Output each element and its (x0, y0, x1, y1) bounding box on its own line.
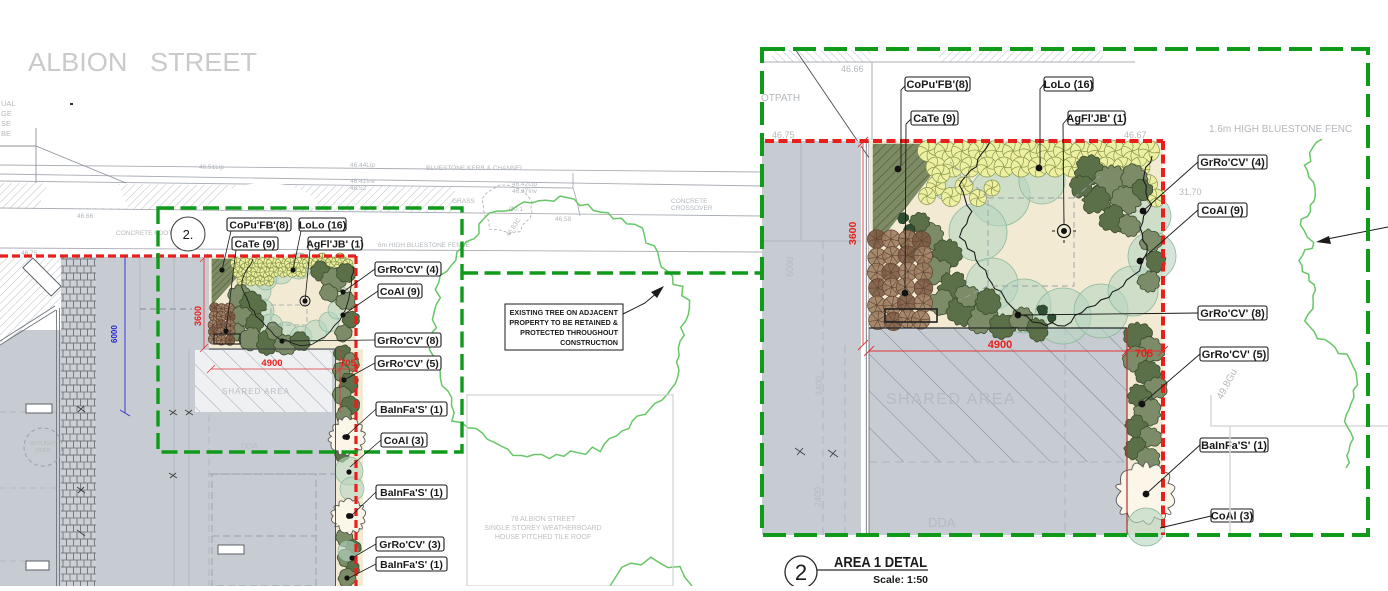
svg-text:OVER: OVER (35, 448, 51, 454)
svg-text:CROSSOVER: CROSSOVER (671, 205, 713, 212)
svg-text:CoAl (3): CoAl (3) (1211, 510, 1254, 522)
svg-text:46.44Lip: 46.44Lip (350, 162, 375, 169)
svg-text:LoLo (16): LoLo (16) (299, 219, 346, 231)
svg-text:CaTe (9): CaTe (9) (235, 238, 276, 250)
svg-text:PROPERTY TO BE RETAINED &: PROPERTY TO BE RETAINED & (509, 318, 618, 327)
svg-text:ALBION STREET: ALBION STREET (28, 47, 257, 77)
svg-text:Scale: 1:50: Scale: 1:50 (873, 574, 928, 586)
svg-text:CaTe (9): CaTe (9) (913, 113, 956, 125)
svg-text:BaInFa'S' (1): BaInFa'S' (1) (380, 404, 443, 416)
svg-text:UAL: UAL (1, 99, 16, 108)
svg-text:DDA: DDA (928, 515, 956, 530)
svg-text:2.: 2. (183, 227, 194, 242)
svg-text:AgFl'JB' (1): AgFl'JB' (1) (306, 238, 364, 250)
svg-text:GrRo'CV' (4): GrRo'CV' (4) (1200, 157, 1265, 169)
svg-text:4900: 4900 (261, 358, 282, 369)
svg-text:4900: 4900 (988, 339, 1012, 351)
svg-text:46.58: 46.58 (555, 216, 572, 223)
svg-text:6000: 6000 (110, 325, 119, 343)
svg-text:GrRo'CV' (3): GrRo'CV' (3) (379, 539, 441, 551)
svg-text:CoAl (9): CoAl (9) (380, 286, 420, 298)
svg-text:OTPATH: OTPATH (761, 93, 800, 104)
svg-text:LoLo (16): LoLo (16) (1044, 79, 1094, 91)
svg-text:6000: 6000 (785, 257, 795, 277)
svg-text:BaInFa'S' (1): BaInFa'S' (1) (1201, 440, 1267, 452)
svg-text:SHARED AREA: SHARED AREA (222, 387, 290, 396)
svg-text:46.66: 46.66 (841, 64, 864, 74)
svg-text:HOUSE PITCHED TILE ROOF: HOUSE PITCHED TILE ROOF (495, 534, 591, 541)
svg-text:GrRo'CV' (8): GrRo'CV' (8) (1200, 308, 1265, 320)
svg-text:GrRo'CV' (4): GrRo'CV' (4) (377, 264, 439, 276)
svg-text:GrRo'CV' (5): GrRo'CV' (5) (1202, 349, 1267, 361)
svg-text:EXISTING TREE ON ADJACENT: EXISTING TREE ON ADJACENT (510, 308, 619, 317)
svg-text:CoAl (3): CoAl (3) (384, 435, 424, 447)
svg-text:46.66: 46.66 (77, 213, 94, 220)
svg-text:CoAl (9): CoAl (9) (1201, 205, 1244, 217)
svg-text:SHARED AREA: SHARED AREA (886, 391, 1016, 408)
svg-text:GrRo'CV' (5): GrRo'CV' (5) (377, 358, 439, 370)
svg-text:BaInFa'S' (1): BaInFa'S' (1) (380, 559, 443, 571)
svg-text:SINGLE STOREY WEATHERBOARD: SINGLE STOREY WEATHERBOARD (484, 525, 601, 532)
svg-text:GrRo'CV' (8): GrRo'CV' (8) (377, 335, 439, 347)
svg-text:CoPu'FB'(8): CoPu'FB'(8) (229, 219, 288, 231)
svg-text:GRASS: GRASS (452, 198, 475, 205)
svg-text:BLUESTONE KERB & CHANNEL: BLUESTONE KERB & CHANNEL (426, 165, 524, 172)
svg-text:6m HIGH BLUESTONE FENCE: 6m HIGH BLUESTONE FENCE (378, 242, 471, 249)
svg-text:3600: 3600 (193, 306, 203, 326)
svg-text:46.67: 46.67 (1124, 130, 1147, 140)
svg-text:46.42Lip: 46.42Lip (512, 181, 537, 188)
svg-text:AREA 1 DETAL: AREA 1 DETAL (834, 555, 927, 571)
svg-text:46.75: 46.75 (772, 130, 795, 140)
svg-text:2400: 2400 (813, 487, 823, 507)
svg-text:DDA: DDA (241, 442, 259, 451)
svg-text:46.51Lip: 46.51Lip (199, 164, 224, 171)
svg-text:3600: 3600 (847, 221, 859, 245)
svg-text:46.37Inv: 46.37Inv (512, 188, 538, 195)
svg-text:705: 705 (340, 358, 357, 369)
svg-text:46.41Inv: 46.41Inv (350, 178, 376, 185)
svg-text:CONSTRUCTION: CONSTRUCTION (560, 338, 618, 347)
svg-text:1.6m HIGH BLUESTONE FENC: 1.6m HIGH BLUESTONE FENC (1209, 124, 1352, 135)
svg-text:CoPu'FB'(8): CoPu'FB'(8) (906, 79, 968, 91)
svg-text:CONCRETE: CONCRETE (671, 198, 708, 205)
svg-text:BaInFa'S' (1): BaInFa'S' (1) (380, 487, 443, 499)
svg-text:GE: GE (1, 109, 12, 118)
svg-text:31.70: 31.70 (1179, 187, 1202, 197)
svg-text:3400: 3400 (814, 376, 824, 396)
svg-text:705: 705 (1135, 348, 1153, 360)
svg-text:PROTECTED THROUGHOUT: PROTECTED THROUGHOUT (520, 328, 618, 337)
svg-text:46.52: 46.52 (350, 185, 367, 192)
svg-text:78 ALBION STREET: 78 ALBION STREET (511, 516, 576, 523)
svg-text:BE: BE (1, 129, 11, 138)
svg-text:AgFl'JB' (1): AgFl'JB' (1) (1066, 113, 1127, 125)
svg-text:2: 2 (795, 560, 807, 585)
svg-text:SKYLIGHT: SKYLIGHT (29, 441, 57, 447)
svg-text:SE: SE (1, 119, 11, 128)
